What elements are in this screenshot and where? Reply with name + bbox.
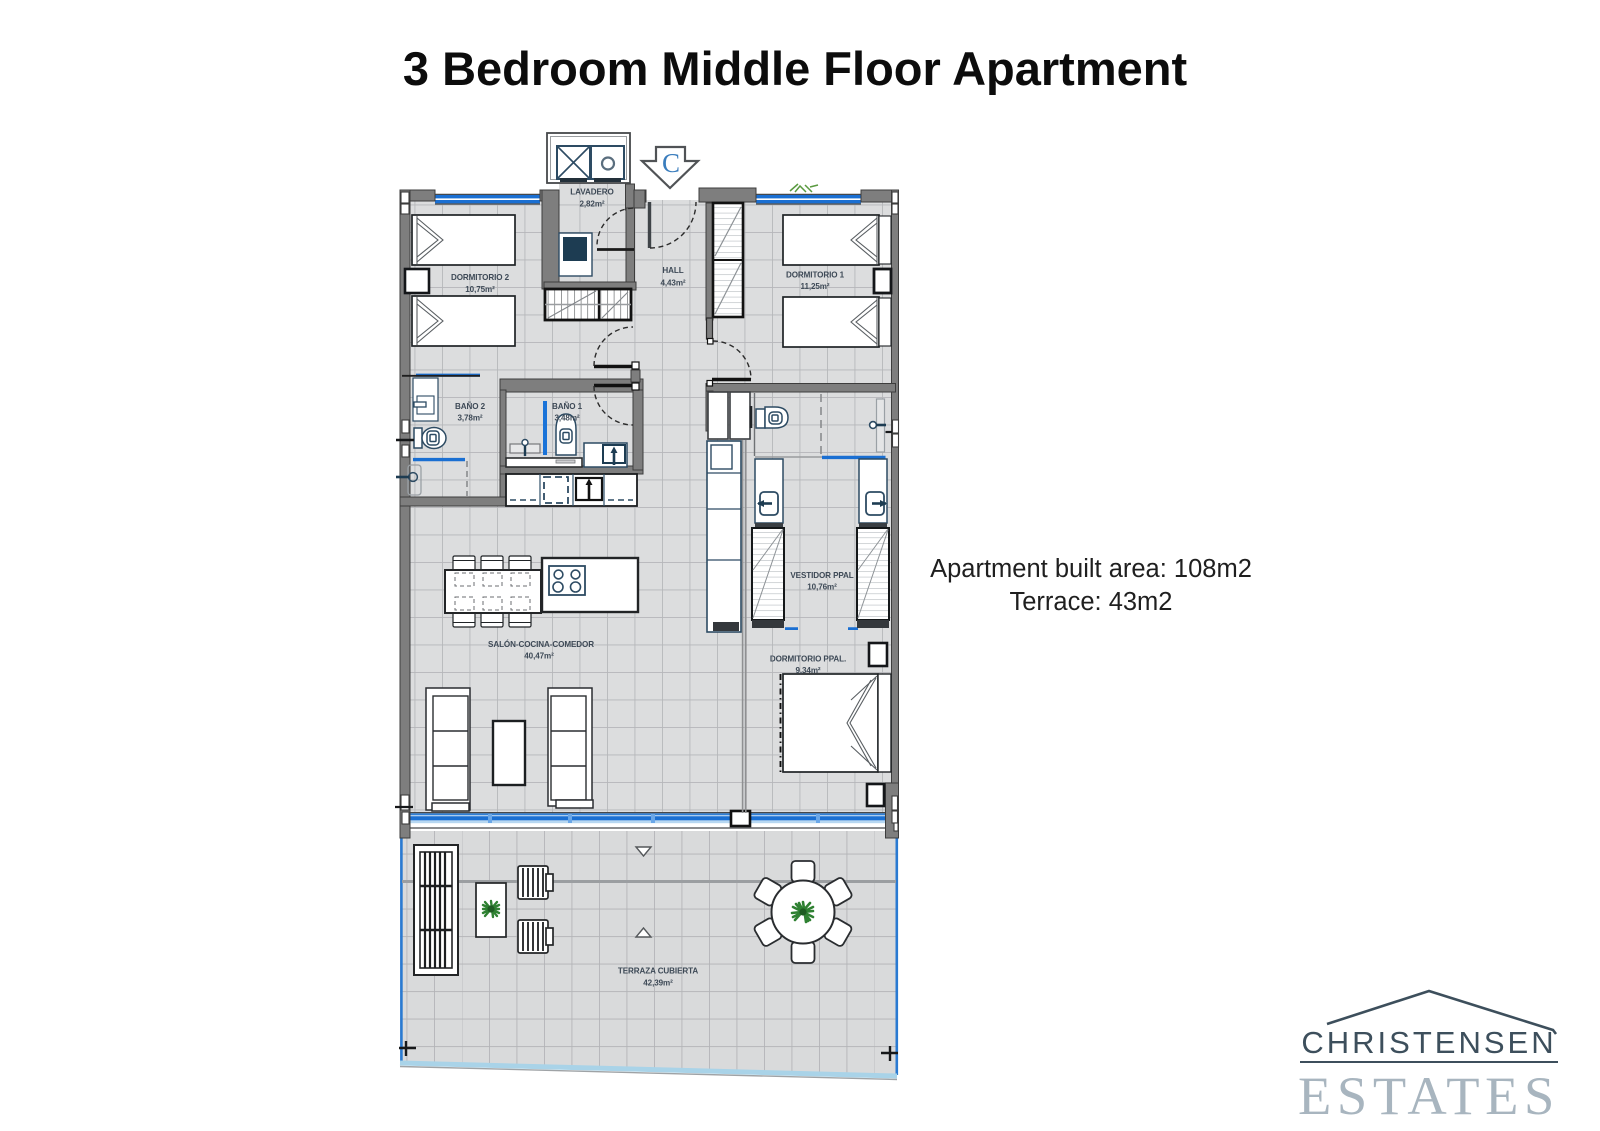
svg-text:3,78m²: 3,78m² [457,414,482,423]
svg-text:42,39m²: 42,39m² [643,979,673,988]
svg-text:BAÑO 2: BAÑO 2 [455,402,486,411]
svg-text:40,47m²: 40,47m² [524,652,554,661]
svg-text:Apartment built area: 108m2: Apartment built area: 108m2 [930,555,1252,583]
svg-text:C: C [662,148,680,178]
svg-text:2,82m²: 2,82m² [579,200,604,209]
svg-text:Terrace: 43m2: Terrace: 43m2 [1010,588,1173,616]
svg-text:9,34m²: 9,34m² [795,666,820,675]
svg-text:TERRAZA CUBIERTA: TERRAZA CUBIERTA [618,967,698,976]
svg-text:VESTIDOR PPAL: VESTIDOR PPAL [790,571,853,580]
svg-text:ESTATES: ESTATES [1298,1065,1560,1126]
svg-text:BAÑO 1: BAÑO 1 [552,402,583,411]
svg-text:CHRISTENSEN: CHRISTENSEN [1301,1025,1556,1060]
svg-text:HALL: HALL [662,266,683,275]
svg-text:DORMITORIO 2: DORMITORIO 2 [451,273,510,282]
svg-text:LAVADERO: LAVADERO [570,188,613,197]
svg-text:11,25m²: 11,25m² [801,282,830,291]
svg-text:3 Bedroom Middle Floor Apartme: 3 Bedroom Middle Floor Apartment [403,42,1188,95]
svg-text:10,75m²: 10,75m² [465,285,495,294]
svg-text:SALÓN-COCINA-COMEDOR: SALÓN-COCINA-COMEDOR [488,640,594,649]
svg-text:10,76m²: 10,76m² [807,583,837,592]
svg-text:DORMITORIO 1: DORMITORIO 1 [786,271,845,280]
svg-text:DORMITORIO PPAL.: DORMITORIO PPAL. [770,655,846,664]
svg-text:4,43m²: 4,43m² [660,279,685,288]
svg-text:3,48m²: 3,48m² [554,414,579,423]
